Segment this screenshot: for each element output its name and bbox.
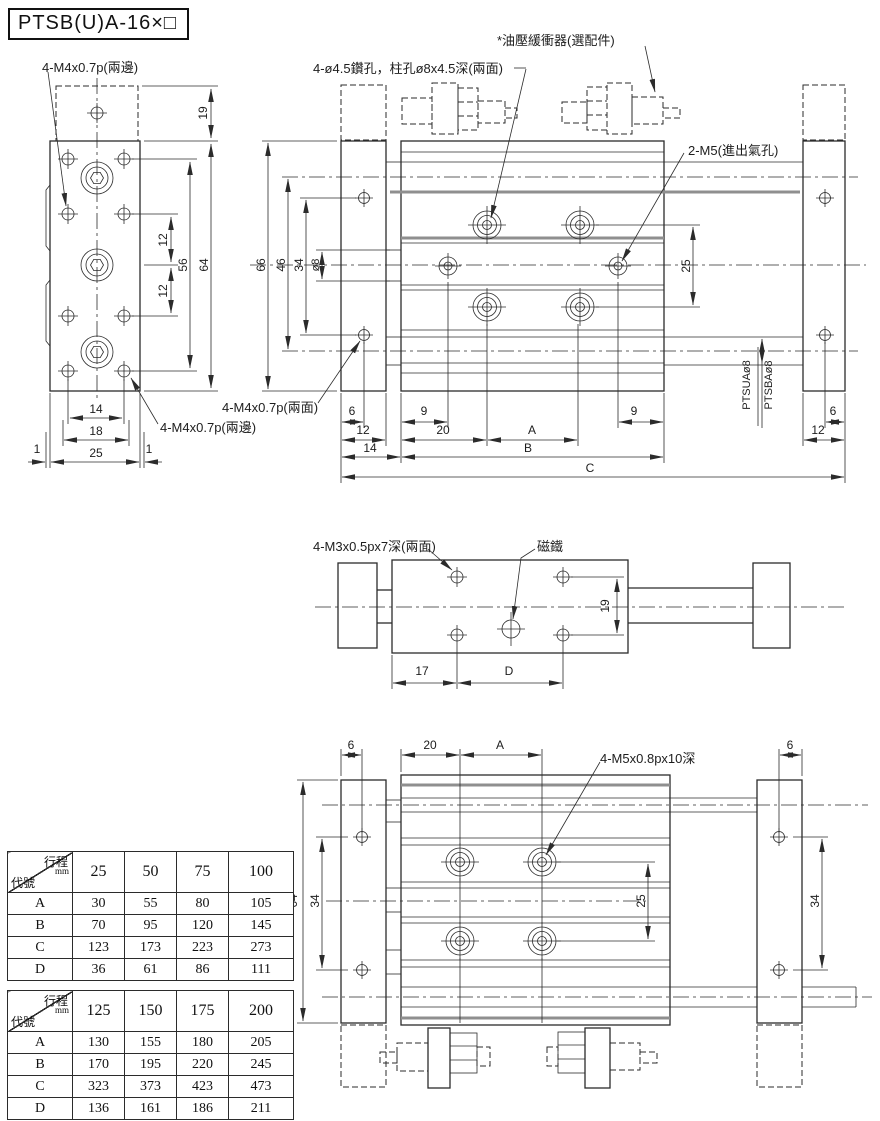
table-col-header: 100 bbox=[229, 852, 294, 893]
dim-label: 9 bbox=[631, 404, 638, 418]
table-row: D136161186211 bbox=[8, 1098, 294, 1120]
dim-label: ø8 bbox=[310, 259, 322, 272]
dim-label: A bbox=[528, 423, 536, 437]
annotation-m3-deep: 4-M3x0.5px7深(兩面) bbox=[313, 536, 436, 555]
dim-label: 20 bbox=[423, 738, 436, 752]
annotation-m4-both-sides-bottom: 4-M4x0.7p(兩邊) bbox=[160, 417, 256, 436]
table-row: A305580105 bbox=[8, 893, 294, 915]
annotation-m5-deep: 4-M5x0.8px10深 bbox=[600, 748, 695, 767]
dim-label: 66 bbox=[254, 258, 268, 271]
dim-label: C bbox=[586, 461, 595, 475]
technical-drawing-page: PTSB(U)A-16×□ 4-M4x0.7p(兩邊) 4-ø4.5鑽孔，柱孔ø… bbox=[0, 0, 880, 1121]
dim-label: 1 bbox=[146, 442, 153, 456]
dim-label: 34 bbox=[292, 258, 306, 271]
table-row: D366186111 bbox=[8, 959, 294, 981]
dim-label: 64 bbox=[197, 258, 211, 271]
annotation-m4-both-faces: 4-M4x0.7p(兩面) bbox=[222, 397, 318, 416]
annotation-air-ports: 2-M5(進出氣孔) bbox=[688, 140, 778, 159]
dim-label: 6 bbox=[787, 738, 794, 752]
dim-label: B bbox=[524, 441, 532, 455]
label-ptsua-rod-dia: PTSUAø8 bbox=[741, 360, 753, 410]
dim-label: 34 bbox=[308, 894, 322, 907]
bottom-view bbox=[297, 749, 872, 1088]
table-corner-cell: 行程 mm 代號 bbox=[8, 991, 73, 1032]
front-view bbox=[250, 46, 866, 483]
table-col-header: 200 bbox=[229, 991, 294, 1032]
dim-label: A bbox=[496, 738, 504, 752]
dim-label: 25 bbox=[89, 446, 102, 460]
shock-absorber-top-right bbox=[562, 83, 680, 134]
dim-label: 17 bbox=[415, 664, 428, 678]
dim-label: 46 bbox=[274, 258, 288, 271]
table-row: B7095120145 bbox=[8, 915, 294, 937]
annotation-magnet: 磁鐵 bbox=[537, 536, 563, 555]
dim-label: 19 bbox=[196, 106, 210, 119]
table-col-header: 75 bbox=[177, 852, 229, 893]
dim-label: 12 bbox=[156, 284, 170, 297]
dim-label: D bbox=[505, 664, 514, 678]
dim-label: 25 bbox=[679, 259, 693, 272]
table-row: A130155180205 bbox=[8, 1032, 294, 1054]
dim-label: 6 bbox=[830, 404, 837, 418]
dim-label: 12 bbox=[156, 233, 170, 246]
dim-label: 18 bbox=[89, 424, 102, 438]
shock-absorber-bottom-left bbox=[380, 1028, 490, 1088]
table-row: B170195220245 bbox=[8, 1054, 294, 1076]
stroke-table-2: 行程 mm 代號 125 150 175 200 A130155180205 B… bbox=[7, 990, 294, 1120]
table-col-header: 125 bbox=[73, 991, 125, 1032]
table-col-header: 50 bbox=[125, 852, 177, 893]
dim-label: 1 bbox=[34, 442, 41, 456]
annotation-hydraulic-shock-absorber: *油壓緩衝器(選配件) bbox=[497, 30, 615, 49]
table-corner-cell: 行程 mm 代號 bbox=[8, 852, 73, 893]
shock-absorber-top-left bbox=[402, 83, 517, 134]
dim-label: 12 bbox=[811, 423, 824, 437]
table-col-header: 175 bbox=[177, 991, 229, 1032]
dim-label: 6 bbox=[348, 738, 355, 752]
stroke-table-1: 行程 mm 代號 25 50 75 100 A305580105 B709512… bbox=[7, 851, 294, 981]
dim-label: 14 bbox=[89, 402, 102, 416]
dim-label: 12 bbox=[356, 423, 369, 437]
side-view bbox=[315, 549, 845, 689]
dim-label: 9 bbox=[421, 404, 428, 418]
part-number-title: PTSB(U)A-16×□ bbox=[8, 8, 189, 40]
shock-absorber-bottom-right bbox=[547, 1028, 657, 1088]
annotation-m4-both-sides-top: 4-M4x0.7p(兩邊) bbox=[42, 57, 138, 76]
dim-label: 34 bbox=[808, 894, 822, 907]
label-ptsba-rod-dia: PTSBAø8 bbox=[763, 361, 775, 410]
table-row: C323373423473 bbox=[8, 1076, 294, 1098]
dim-label: 25 bbox=[634, 894, 648, 907]
table-col-header: 25 bbox=[73, 852, 125, 893]
dim-label: 6 bbox=[349, 404, 356, 418]
table-row: C123173223273 bbox=[8, 937, 294, 959]
dim-label: 20 bbox=[436, 423, 449, 437]
dim-label: 19 bbox=[598, 599, 612, 612]
dim-label: 14 bbox=[363, 441, 376, 455]
dim-label: 56 bbox=[176, 258, 190, 271]
table-col-header: 150 bbox=[125, 991, 177, 1032]
annotation-drill-holes: 4-ø4.5鑽孔，柱孔ø8x4.5深(兩面) bbox=[313, 58, 503, 77]
